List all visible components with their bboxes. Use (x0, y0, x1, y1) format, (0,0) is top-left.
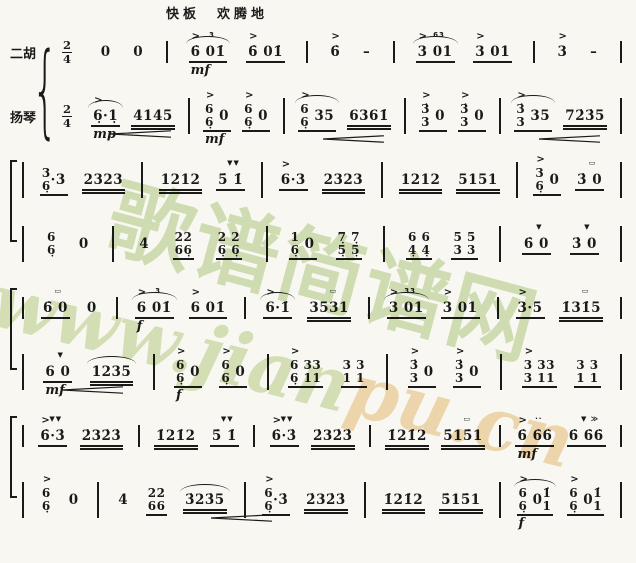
barline (620, 226, 622, 262)
note-group: 3̇3 0> (458, 103, 486, 130)
accent-mark: > (206, 90, 214, 101)
note-text: 3 01 (389, 300, 424, 316)
chord-note: 3̇ (460, 103, 469, 116)
note-group: 66̣ 0>f (174, 359, 202, 386)
note-group: 16̣ 0 (289, 231, 317, 258)
note-text: 1235 (92, 364, 132, 380)
measure: 3·5>1̇31̇5▭ (501, 300, 618, 316)
barline (533, 41, 535, 63)
barline (383, 226, 385, 262)
note-chord: 3 31 1 (576, 359, 598, 386)
chord-note: 22 (148, 487, 166, 500)
measure: 6̇·3̇>▼▼2̇32̇3̇ (26, 428, 136, 444)
measure: 3 01>633 01> (397, 44, 531, 60)
accent-mark: > (265, 474, 273, 485)
measure: 66̣·3̇>2̇32̇3̇ (248, 487, 361, 514)
note-chord: 3 31 1 (343, 359, 365, 386)
note-chord: 2266̣ (175, 231, 193, 258)
measure: 6 336̣ 11>3 31 1 (271, 359, 385, 386)
note-group: 66̣ 01̇1> (567, 487, 604, 514)
note-text: 3 01 (418, 44, 453, 60)
note-text: 1212 (161, 172, 201, 188)
note-group: 1̇21̇2 (385, 428, 429, 444)
barline (267, 354, 269, 390)
barline (261, 162, 263, 198)
note-chord: 3̇3 (455, 359, 464, 386)
barline (153, 354, 155, 390)
system: {二胡24006̇ 01̇>3mf6̇ 01̇>6̇>–3 01>633 01>… (8, 30, 624, 138)
note-text: 5̇15̇1 (443, 428, 483, 444)
note-text: 3·5 (518, 300, 543, 316)
note-group: 6̇ 6̇6̇▼ ≫ (567, 428, 606, 444)
note-text: 1212 (401, 172, 441, 188)
chord-note: 6̣ (176, 372, 185, 385)
note-text: 1̇21̇2 (156, 428, 196, 444)
measure: 42266̣2 26̣ 6̣ (116, 231, 264, 258)
note-text: 6·3 (281, 172, 306, 188)
note-chord: 3̇3 (460, 103, 469, 130)
system: 6̇·3̇>▼▼2̇32̇3̇1̇21̇25̇ 1̇▼▼6̇·3̇>▼▼2̇32… (8, 414, 624, 522)
ornament-mark: ▭ (589, 159, 597, 167)
note-group: 5̇15̇1 (439, 492, 483, 508)
chord-note: 3 (410, 372, 419, 385)
note-chord: 66̣ (244, 103, 253, 130)
barline (266, 226, 268, 262)
note-text: 5̇ 1̇ (212, 428, 237, 444)
note-group: 2̇32̇3̇ (304, 492, 348, 508)
score-line: 扬琴246̣·1̣>mp414566̣ 0>mf66̣ 0>66̣ 35>636… (10, 94, 624, 138)
chord-note: 1 1 (576, 372, 598, 385)
ornament-mark: ▭ (582, 287, 590, 295)
note-text: 6̇·3̇ (40, 428, 65, 444)
note-text: ·3 (51, 172, 66, 188)
sheet-music-page: 快板 欢腾地 {二胡24006̇ 01̇>3mf6̇ 01̇>6̇>–3 01>… (0, 0, 636, 563)
note-group: 3 333 11> (522, 359, 557, 386)
barline (22, 226, 24, 262)
slur-arc (180, 484, 230, 492)
note-group: 7̣ 7̣5̣ 5̣ (336, 231, 362, 258)
note-text: 0 (101, 44, 111, 60)
chord-note: 1 (593, 500, 602, 513)
chord-note: 1 (291, 231, 300, 244)
note-group: 6361̇ (347, 108, 391, 124)
note-text: 1̇31̇5 (561, 300, 601, 316)
note-text: 0 (214, 108, 229, 124)
accent-mark: > (525, 346, 533, 357)
chord-note: 3 (455, 372, 464, 385)
note-text: – (363, 44, 370, 60)
instrument-label: 扬琴 (10, 107, 42, 126)
chord-note: 6̣ (42, 180, 51, 193)
accent-mark: > (411, 346, 419, 357)
note-group: 2̇32̇3̇ (80, 428, 124, 444)
note-text: 6361̇ (349, 108, 389, 124)
note-group: 5̇ 1̇▼▼ (216, 172, 245, 188)
chord-note: 3 (535, 167, 544, 180)
note-text: 4145 (133, 108, 173, 124)
measure: 00 (80, 44, 164, 60)
note-text: 6̇ 6̇6̇ (517, 428, 552, 444)
barline (22, 482, 24, 518)
accent-mark: > (476, 31, 484, 42)
barline (499, 98, 501, 134)
measure: 1̇21̇25̇15̇1▭ (373, 428, 497, 444)
accent-mark: > (249, 31, 257, 42)
measure: 3̇3 0>3̇3 0> (408, 103, 497, 130)
ornament-mark: ▼▼ (281, 415, 294, 423)
measure: 66̣ 35>6361̇ (287, 103, 402, 130)
note-group: 5̇ 1̇▼▼ (210, 428, 239, 444)
chord-note: 4̣ 4̣ (408, 244, 430, 257)
note-text: 0 (87, 300, 97, 316)
note-group: 0 (131, 44, 145, 60)
chord-note: 6 (42, 487, 51, 500)
note-text: 6̇·3̇ (272, 428, 297, 444)
note-group: 66̣ 0> (219, 359, 247, 386)
note-group: 6·1̇> (263, 300, 292, 316)
measure: 66̣>0 (26, 487, 95, 514)
note-group: 3̇23̇5 (183, 492, 227, 508)
note-text: 5151 (458, 172, 498, 188)
chord-note: 6̣ 11 (290, 372, 321, 385)
note-group: 3̇ 0▭ (575, 172, 604, 188)
note-group: 1̇31̇5▭ (559, 300, 603, 316)
note-group: 6 01̇> (189, 300, 228, 316)
chord-note: 6 6 (408, 231, 430, 244)
measure: 36̣ 0>3̇ 0▭ (520, 167, 618, 194)
chord-note: 6̣ (264, 500, 273, 513)
note-group: 3̇3 0> (408, 359, 436, 386)
note-group: 66̣·3̇> (262, 487, 290, 514)
measure: 36̣·32323 (26, 167, 139, 194)
note-group: 2323 (322, 172, 366, 188)
barline (138, 425, 140, 447)
note-group: 4 (137, 236, 151, 252)
note-text: 0 (544, 172, 559, 188)
accent-mark: > (192, 287, 200, 298)
chord-note: 6̣ (535, 180, 544, 193)
barline (22, 354, 24, 390)
slur-arc (384, 292, 429, 300)
chord-note: 3 (421, 116, 430, 129)
chord-note: 6̣ (47, 244, 56, 257)
note-group: 66̣> (40, 487, 53, 514)
accent-mark: > (282, 159, 290, 170)
barline (499, 226, 501, 262)
note-group: 6̇> (328, 44, 342, 60)
note-group: 5151 (456, 172, 500, 188)
note-group: 6 336̣ 11> (288, 359, 323, 386)
chord-note: 6̣ (300, 116, 309, 129)
ornament-mark: ▼▼ (221, 415, 234, 423)
note-text: 4 (139, 236, 149, 252)
chord-note: 5̣ 5̣ (338, 244, 360, 257)
note-text: 0 (430, 108, 445, 124)
chord-note: 6 (519, 487, 528, 500)
note-group: 66̣ 35> (298, 103, 336, 130)
note-text: 0 (133, 44, 143, 60)
chord-note: 1̇ (593, 487, 602, 500)
note-group: 6̇ 01̇> (246, 44, 285, 60)
chord-note: 6 (264, 487, 273, 500)
time-signature-denominator: 4 (63, 53, 71, 66)
note-text: 2323 (324, 172, 364, 188)
time-signature-numerator: 2 (62, 39, 72, 53)
note-group: 3̇ 0▼ (570, 236, 599, 252)
note-group: 6 01̇>3f (135, 300, 174, 316)
barline (244, 482, 246, 518)
note-chord: 5 53 3 (453, 231, 475, 258)
system: 36̣·3232312125̇ 1̇▼▼6·3>23231212515136̣ … (8, 158, 624, 266)
measure: 6 0▼mf1235 (26, 364, 151, 380)
barline (620, 98, 622, 134)
note-chord: 3̇3 (410, 359, 419, 386)
ornament-mark: ▭ (330, 287, 338, 295)
ornament-mark: ▭ (55, 287, 63, 295)
note-text: 0 (69, 492, 79, 508)
measure: 6̇ 0▼3̇ 0▼ (503, 236, 618, 252)
barline (253, 425, 255, 447)
note-group: 3 01>63 (416, 44, 455, 60)
note-chord: 66̣ (300, 103, 309, 130)
accent-mark: > (570, 474, 578, 485)
score-line: 36̣·3232312125̇ 1̇▼▼6·3>23231212515136̣ … (20, 158, 624, 202)
ornament-mark: ·· (535, 415, 542, 423)
note-text: 72̇3̇5 (565, 108, 605, 124)
measure: 422663̇23̇5 (101, 487, 243, 514)
note-chord: 66̣ (519, 487, 528, 514)
time-signature-denominator: 4 (63, 117, 71, 130)
note-chord: 7̣ 7̣5̣ 5̣ (338, 231, 360, 258)
measure: 1̇21̇25̇15̇1 (368, 492, 497, 508)
measure: 16̣ 07̣ 7̣5̣ 5̣ (270, 231, 381, 258)
score-line: 6̇·3̇>▼▼2̇32̇3̇1̇21̇25̇ 1̇▼▼6̇·3̇>▼▼2̇32… (20, 414, 624, 458)
chord-note: 6̣ (244, 116, 253, 129)
note-group: 6 0▼mf (43, 364, 72, 380)
barline (141, 162, 143, 198)
note-chord: 6 64̣ 4̣ (408, 231, 430, 258)
chord-note: 66̣ (175, 244, 193, 257)
chord-note: 6̣ (291, 244, 300, 257)
note-group: 3̇3 0> (419, 103, 447, 130)
note-group: 2266 (146, 487, 168, 514)
note-text: 0 (464, 364, 479, 380)
tempo-marking: 快板 欢腾地 (166, 3, 268, 22)
note-text: 2̇32̇3̇ (313, 428, 353, 444)
note-text: 35 (309, 108, 334, 124)
barline (283, 98, 285, 134)
barline (516, 162, 518, 198)
time-signature: 24 (62, 39, 72, 65)
barline (188, 98, 190, 134)
note-chord: 3̇3 (421, 103, 430, 130)
accent-mark: > (518, 415, 526, 426)
note-group: 3 31 1 (574, 359, 600, 386)
system: 6̇ 0▭06 01̇>3f6 01̇>6·1̇>3531▭3 01>333 0… (8, 286, 624, 394)
note-text: 3 01 (475, 44, 510, 60)
note-group: 3̇3 0> (453, 359, 481, 386)
note-text: 0 (185, 364, 200, 380)
note-text: 2̇32̇3̇ (306, 492, 346, 508)
chord-note: 3 3 (453, 244, 475, 257)
note-chord: 66̣ (47, 231, 56, 258)
barline (381, 162, 383, 198)
barline (620, 41, 622, 63)
measure: 3 333 11>3 31 1 (504, 359, 618, 386)
measure: 6̇ 01̇>3mf6̇ 01̇> (170, 44, 304, 60)
note-text: 3̇ 0 (577, 172, 602, 188)
chord-note: 3 (516, 116, 525, 129)
dynamic-mark: f (519, 516, 525, 531)
note-chord: 66̣ (264, 487, 273, 514)
chord-note: 6 (244, 103, 253, 116)
measure: 66̣ 0>mf66̣ 0> (192, 103, 281, 130)
note-group: 0 (77, 236, 91, 252)
note-group: 6̇ 0▼ (522, 236, 551, 252)
note-group: 1212 (399, 172, 443, 188)
note-chord: 3 333 11 (524, 359, 555, 386)
dynamic-mark: mf (517, 447, 536, 462)
note-group: 0 (85, 300, 99, 316)
barline (393, 41, 395, 63)
barline (499, 482, 501, 518)
score-line: 6 0▼mf123566̣ 0>f66̣ 0>6 336̣ 11>3 31 13… (20, 350, 624, 394)
accent-mark: > (461, 90, 469, 101)
note-text: 5̇15̇1 (441, 492, 481, 508)
note-group: 4 (116, 492, 130, 508)
crescendo-hairpin (538, 135, 602, 143)
chord-note: 66 (148, 500, 166, 513)
chord-note: 1 1 (343, 372, 365, 385)
chord-note: 6 (221, 359, 230, 372)
slur-arc (186, 36, 231, 44)
note-text: 6 01̇ (137, 300, 172, 316)
ornament-mark: ▼ (584, 223, 590, 231)
note-text: 1̇21̇2 (384, 492, 424, 508)
chord-note: 6̣ (221, 372, 230, 385)
accent-mark: > (456, 346, 464, 357)
measure: 3>– (537, 44, 618, 60)
time-signature-numerator: 2 (62, 103, 72, 117)
accent-mark: > (444, 287, 452, 298)
slur-arc (260, 292, 295, 300)
barline (500, 354, 502, 390)
ornament-mark: ▼ (58, 351, 64, 359)
time-signature: 24 (62, 103, 72, 129)
chord-note: 6̣ (205, 116, 214, 129)
note-group: 3 01>33 (387, 300, 426, 316)
note-group: 0 (99, 44, 113, 60)
crescendo-hairpin (109, 130, 173, 138)
note-group: 6̇ 6̇6̇>··mf (515, 428, 554, 444)
note-chord: 36̣ (42, 167, 51, 194)
note-group: 6̇·3̇>▼▼ (270, 428, 299, 444)
chord-note: 6̣ (519, 500, 528, 513)
accent-mark: > (331, 31, 339, 42)
note-chord: 6 336̣ 11 (290, 359, 321, 386)
measure: 6 01̇>3f6 01̇> (120, 300, 243, 316)
dynamic-mark: mf (205, 132, 224, 147)
chord-note: 6 (300, 103, 309, 116)
note-chord: 2266 (148, 487, 166, 514)
accent-mark: > (43, 474, 51, 485)
note-group: 2266̣ (173, 231, 195, 258)
note-text: 2323 (84, 172, 124, 188)
barline (620, 297, 622, 319)
measure: 3̇3 0>3̇3 0> (390, 359, 498, 386)
note-text: 3 01 (443, 300, 478, 316)
chord-note: 5 5 (453, 231, 475, 244)
chord-note: 1 (542, 500, 551, 513)
barline (368, 297, 370, 319)
measure: 3̇3 35>72̇3̇5 (503, 103, 618, 130)
barline (386, 354, 388, 390)
chord-note: 1̇ (542, 487, 551, 500)
dynamic-mark: f (137, 319, 143, 334)
chord-note: 6̣ 6̣ (218, 244, 240, 257)
note-group: 66̣ 0> (242, 103, 270, 130)
barline (620, 162, 622, 198)
chord-note: 3̇ (516, 103, 525, 116)
measure: 66̣0 (26, 231, 110, 258)
accent-mark: > (291, 346, 299, 357)
slur-arc (88, 100, 123, 108)
note-text: 1̇21̇2 (387, 428, 427, 444)
note-chord: 66̣ (205, 103, 214, 130)
chord-note: 3̇ (421, 103, 430, 116)
barline (306, 41, 308, 63)
note-text: 0 (469, 108, 484, 124)
note-group: – (588, 44, 599, 60)
barline (97, 482, 99, 518)
measure: 1̇21̇25̇ 1̇▼▼ (142, 428, 252, 444)
note-text: 6 0 (45, 364, 70, 380)
note-chord: 3̇3 (516, 103, 525, 130)
note-chord: 36̣ (535, 167, 544, 194)
note-text: 3531 (309, 300, 349, 316)
barline (364, 482, 366, 518)
note-text: 6̇ 01̇ (248, 44, 283, 60)
note-group: 1̇21̇2 (382, 492, 426, 508)
ornament-mark: ▼▼ (49, 415, 62, 423)
note-text: 0 (230, 364, 245, 380)
accent-mark: > (422, 90, 430, 101)
note-group: 3·5> (516, 300, 545, 316)
crescendo-hairpin (322, 135, 386, 143)
chord-note: 3 3 (343, 359, 365, 372)
note-text: – (590, 44, 597, 60)
chord-note: 6 (176, 359, 185, 372)
note-group: 1212 (159, 172, 203, 188)
crescendo-hairpin (61, 386, 125, 394)
note-group: 3531▭ (307, 300, 351, 316)
note-text: 3̇23̇5 (185, 492, 225, 508)
chord-note: 6 33 (290, 359, 321, 372)
ornament-mark: ▼▼ (227, 159, 240, 167)
note-group: 6·3> (279, 172, 308, 188)
chord-note: 3 3 (576, 359, 598, 372)
note-group: 66̣ 01̇1>f (517, 487, 554, 514)
chord-note: 22 (175, 231, 193, 244)
note-group: 3̇3 35> (514, 103, 552, 130)
score-line: 66̣>0422663̇23̇566̣·3̇>2̇32̇3̇1̇21̇25̇15… (20, 478, 624, 522)
measure: 3 01>333 01> (372, 300, 495, 316)
barline (404, 98, 406, 134)
measure: 66̣ 01̇1>f66̣ 01̇1> (503, 487, 618, 514)
score: {二胡24006̇ 01̇>3mf6̇ 01̇>6̇>–3 01>633 01>… (8, 30, 624, 522)
note-text: 0 (527, 492, 542, 508)
barline (22, 297, 24, 319)
